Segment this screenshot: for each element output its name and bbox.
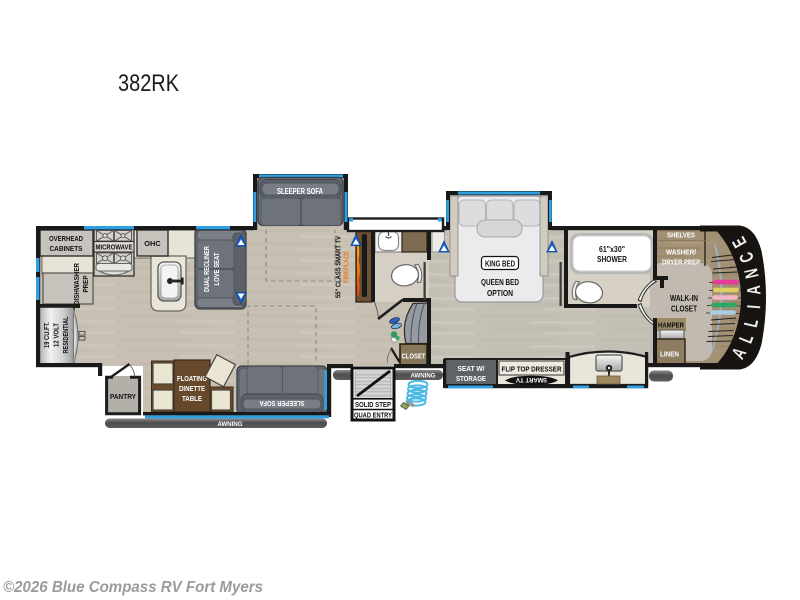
svg-text:DUAL RECLINER: DUAL RECLINER	[202, 246, 211, 292]
svg-text:TABLE: TABLE	[182, 394, 202, 403]
svg-text:A: A	[744, 285, 766, 296]
svg-text:19 CU.FT.: 19 CU.FT.	[42, 322, 51, 348]
svg-text:12 VOLT: 12 VOLT	[52, 323, 61, 347]
svg-text:LINEN: LINEN	[660, 352, 679, 359]
svg-text:MICROWAVE: MICROWAVE	[96, 243, 133, 252]
svg-text:SLEEPER SOFA: SLEEPER SOFA	[277, 187, 323, 196]
svg-text:OVERHEAD: OVERHEAD	[49, 234, 83, 243]
svg-text:CLOSET: CLOSET	[671, 305, 697, 314]
svg-text:KING BED: KING BED	[485, 260, 515, 269]
svg-text:PREP: PREP	[81, 276, 90, 293]
svg-text:FIREPLACE: FIREPLACE	[342, 251, 351, 283]
svg-text:DISHWASHER: DISHWASHER	[72, 263, 81, 305]
svg-text:SHOWER: SHOWER	[597, 255, 627, 264]
svg-text:55" CLASS SMART TV: 55" CLASS SMART TV	[334, 236, 343, 298]
svg-text:AWNING: AWNING	[218, 421, 243, 428]
svg-text:DINETTE: DINETTE	[179, 384, 205, 393]
svg-text:SEAT W/: SEAT W/	[458, 364, 485, 373]
svg-text:LOVE SEAT: LOVE SEAT	[212, 252, 221, 285]
svg-text:CLOSET: CLOSET	[402, 354, 427, 361]
svg-text:FLIP TOP DRESSER: FLIP TOP DRESSER	[502, 365, 562, 374]
svg-text:RESIDENTIAL: RESIDENTIAL	[61, 316, 70, 353]
svg-text:SOLID STEP: SOLID STEP	[355, 400, 391, 409]
svg-text:61"x30": 61"x30"	[599, 245, 625, 254]
svg-text:OPTION: OPTION	[487, 288, 513, 298]
svg-text:QUEEN BED: QUEEN BED	[481, 277, 519, 287]
svg-text:382RK: 382RK	[118, 70, 179, 97]
svg-text:WASHER/: WASHER/	[666, 248, 696, 257]
svg-text:STORAGE: STORAGE	[456, 374, 486, 383]
svg-text:©2026 Blue Compass RV Fort Mye: ©2026 Blue Compass RV Fort Myers	[3, 579, 263, 596]
svg-text:OHC: OHC	[144, 239, 161, 248]
svg-text:SLEEPER SOFA: SLEEPER SOFA	[259, 399, 304, 408]
svg-text:SHELVES: SHELVES	[667, 231, 695, 240]
svg-text:HAMPER: HAMPER	[658, 323, 684, 330]
svg-text:AWNING: AWNING	[411, 373, 436, 380]
svg-text:WALK-IN: WALK-IN	[670, 294, 698, 303]
svg-text:SMART TV: SMART TV	[515, 376, 547, 383]
svg-text:PANTRY: PANTRY	[110, 392, 136, 401]
svg-text:FLOATING: FLOATING	[177, 374, 207, 383]
svg-text:QUAD ENTRY: QUAD ENTRY	[354, 411, 392, 420]
svg-text:DRYER PREP: DRYER PREP	[662, 258, 700, 267]
svg-text:CABINETS: CABINETS	[50, 244, 83, 253]
